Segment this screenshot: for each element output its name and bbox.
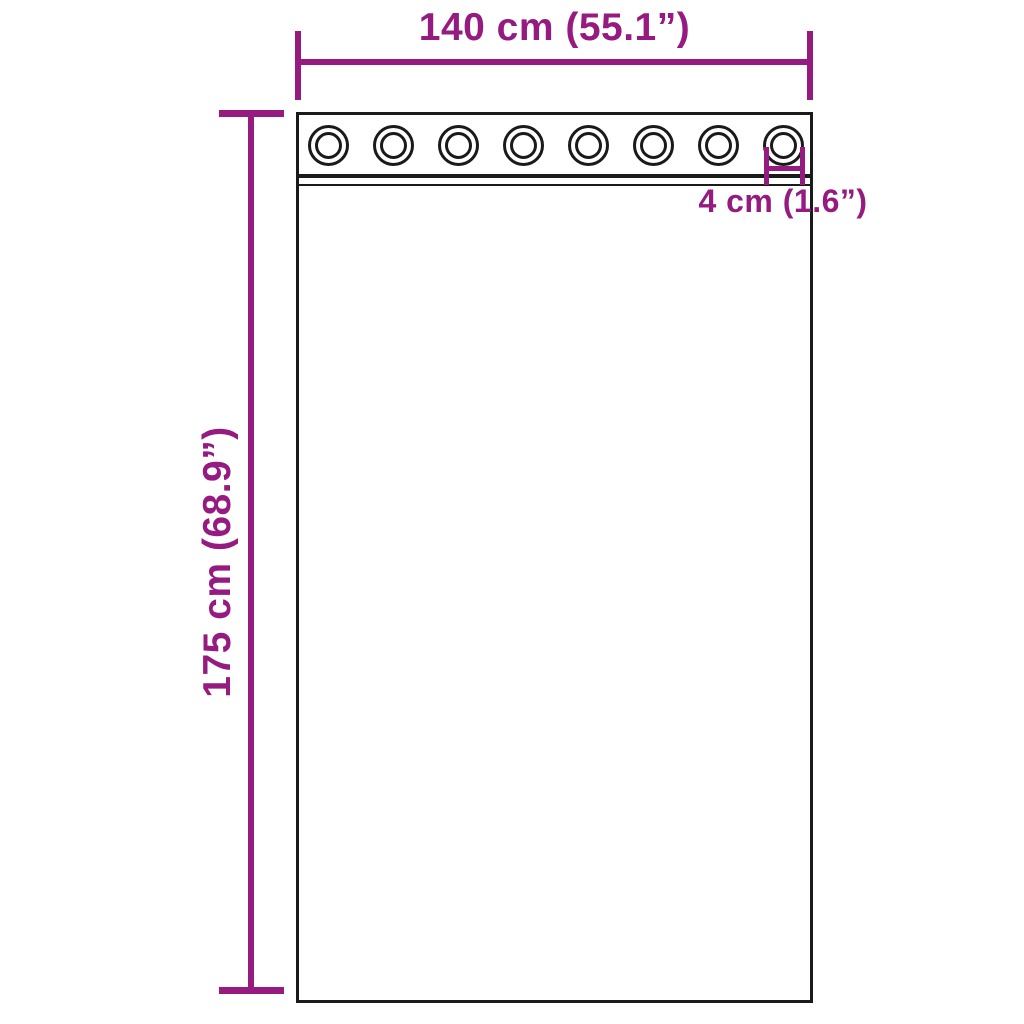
grommet-hole: [640, 132, 667, 159]
grommet-dimension-bar: [764, 166, 805, 171]
grommet-dimension-label: 4 cm (1.6”): [698, 183, 867, 220]
height-dimension-line: [248, 110, 254, 993]
grommet: [698, 125, 739, 166]
product-diagram-canvas: 140 cm (55.1”) 175 cm (68.9”) 4 cm (1.6”…: [0, 0, 1024, 1024]
grommet: [763, 125, 804, 166]
width-dimension-label: 140 cm (55.1”): [296, 6, 813, 50]
grommet-hole: [510, 132, 537, 159]
grommet: [633, 125, 674, 166]
grommet-hole: [315, 132, 342, 159]
grommet: [568, 125, 609, 166]
grommet-hole: [445, 132, 472, 159]
grommet: [373, 125, 414, 166]
header-seam-line-top: [299, 174, 810, 178]
grommet: [438, 125, 479, 166]
height-dimension-label: 175 cm (68.9”): [196, 426, 240, 698]
grommet-row: [299, 115, 810, 178]
width-dimension-line: [296, 59, 813, 65]
grommet-hole: [705, 132, 732, 159]
grommet-hole: [575, 132, 602, 159]
grommet-hole: [380, 132, 407, 159]
grommet-hole: [770, 132, 797, 159]
height-dimension-end-cap-top: [219, 110, 284, 117]
curtain-panel: [296, 112, 813, 1003]
height-dimension-end-cap-bottom: [219, 987, 284, 994]
grommet: [308, 125, 349, 166]
grommet: [503, 125, 544, 166]
